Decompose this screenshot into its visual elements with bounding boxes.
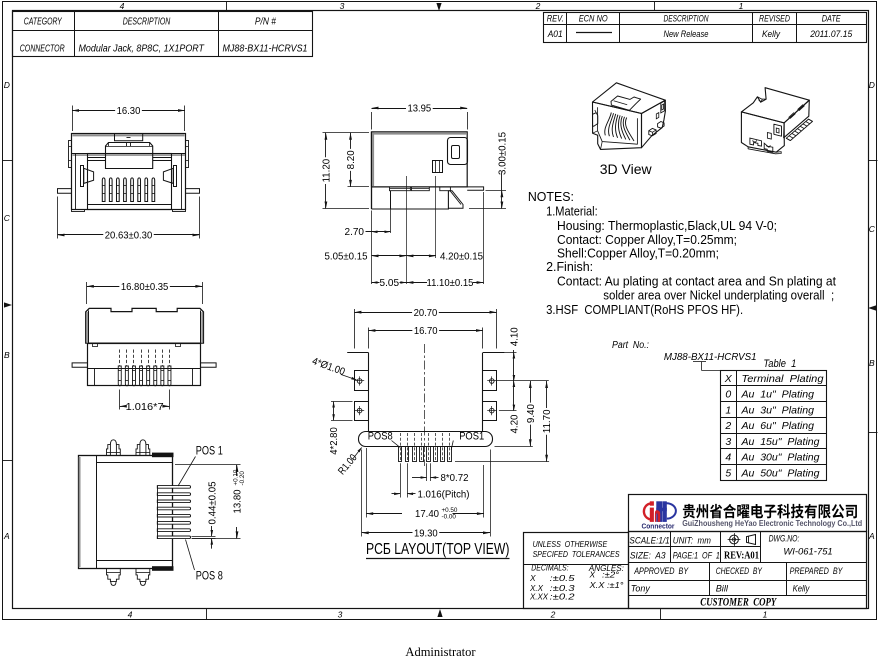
svg-text:13.95: 13.95 — [407, 104, 431, 115]
svg-text:SCALE:1/1: SCALE:1/1 — [629, 535, 669, 546]
svg-text:solder area over Nickel underp: solder area over Nickel underplating ove… — [603, 289, 834, 303]
svg-text:2: 2 — [550, 610, 556, 620]
svg-text:5.05±0.15: 5.05±0.15 — [325, 251, 368, 262]
svg-text::±0.2: :±0.2 — [550, 591, 575, 601]
svg-text:20.63±0.30: 20.63±0.30 — [105, 231, 153, 242]
svg-text:1.016(Pitch): 1.016(Pitch) — [418, 489, 470, 500]
svg-text:4: 4 — [128, 610, 133, 620]
svg-text:16.30: 16.30 — [117, 106, 141, 117]
svg-text:-0.00: -0.00 — [442, 514, 457, 521]
svg-text:3.00±0.15: 3.00±0.15 — [497, 132, 508, 175]
svg-text:-0.20: -0.20 — [239, 471, 246, 486]
svg-text:Tony: Tony — [631, 583, 651, 594]
svg-text:2: 2 — [535, 1, 541, 11]
svg-text:2.Finish:: 2.Finish: — [546, 260, 593, 274]
svg-text:3: 3 — [338, 610, 343, 620]
svg-text:C: C — [4, 213, 11, 223]
svg-text:Bill: Bill — [716, 583, 729, 594]
svg-text:20.70: 20.70 — [414, 308, 438, 319]
svg-text:REVISED: REVISED — [759, 13, 790, 24]
svg-text:POS1: POS1 — [459, 430, 484, 442]
svg-text:Kelly: Kelly — [762, 29, 781, 40]
svg-text:REV:A01: REV:A01 — [724, 551, 759, 562]
svg-text:POS8: POS8 — [368, 430, 393, 442]
svg-text:1: 1 — [763, 610, 768, 620]
svg-text:8.20: 8.20 — [346, 150, 357, 169]
svg-text:PREPARED BY: PREPARED BY — [790, 566, 843, 577]
svg-text:APPROVED BY: APPROVED BY — [633, 566, 688, 577]
svg-text:Au 15u" Plating: Au 15u" Plating — [740, 436, 819, 448]
svg-text:0: 0 — [725, 389, 731, 401]
svg-text:2: 2 — [724, 420, 731, 432]
svg-text:B: B — [4, 350, 10, 360]
svg-text:X: X — [589, 570, 596, 580]
svg-text:5: 5 — [725, 467, 731, 479]
svg-text:SPECIFED TOLERANCES: SPECIFED TOLERANCES — [533, 549, 620, 559]
svg-text:16.80±0.35: 16.80±0.35 — [121, 282, 169, 293]
svg-text:UNIT: mm: UNIT: mm — [673, 535, 711, 546]
svg-text:Administrator: Administrator — [405, 645, 476, 659]
svg-text:2011.07.15: 2011.07.15 — [809, 29, 853, 40]
svg-text:4.20: 4.20 — [509, 414, 520, 433]
svg-text:4.20±0.15: 4.20±0.15 — [440, 251, 483, 262]
svg-text:X.XX: X.XX — [529, 591, 548, 601]
svg-text:Contact: Copper Alloy,T=0.25mm: Contact: Copper Alloy,T=0.25mm; — [557, 233, 737, 247]
svg-text:11.10±0.15: 11.10±0.15 — [427, 278, 474, 289]
svg-text:17.40: 17.40 — [415, 509, 439, 520]
svg-text:3: 3 — [725, 436, 731, 448]
svg-text:Part No.:: Part No.: — [612, 340, 649, 351]
svg-text:Housing: Thermoplastic,Бlack,U: Housing: Thermoplastic,Бlack,UL 94 V-0; — [557, 219, 777, 233]
svg-text:Connector: Connector — [642, 522, 675, 531]
svg-text:B: B — [869, 358, 875, 368]
svg-text:CATEGORY: CATEGORY — [24, 16, 63, 27]
svg-text:C: C — [869, 224, 876, 234]
svg-text:D: D — [4, 80, 10, 90]
svg-text:D: D — [869, 80, 875, 90]
svg-text::±0.5: :±0.5 — [550, 573, 575, 583]
svg-text:9.40: 9.40 — [526, 404, 537, 423]
svg-text::±2°: :±2° — [602, 570, 620, 580]
svg-text:CUSTOMER COPY: CUSTOMER COPY — [700, 597, 777, 609]
svg-text:8*0.72: 8*0.72 — [441, 473, 469, 484]
svg-text:4: 4 — [120, 1, 125, 11]
svg-text:4*2.80: 4*2.80 — [329, 427, 340, 455]
svg-text:Au 30u" Plating: Au 30u" Plating — [740, 452, 819, 464]
svg-text:1.016*7: 1.016*7 — [126, 402, 164, 413]
svg-text:Au 6u" Plating: Au 6u" Plating — [740, 420, 814, 432]
svg-text:1: 1 — [725, 404, 731, 416]
svg-text:11.70: 11.70 — [542, 409, 553, 433]
svg-text:4.10: 4.10 — [509, 327, 520, 346]
svg-text:A: A — [3, 531, 10, 541]
svg-text:Contact: Au plating at contact: Contact: Au plating at contact area and … — [557, 275, 836, 289]
svg-text:X: X — [724, 373, 733, 385]
svg-text:Au 50u" Plating: Au 50u" Plating — [740, 467, 819, 479]
svg-text:Kelly: Kelly — [793, 583, 811, 594]
svg-text:DESCRIPTION: DESCRIPTION — [123, 16, 171, 27]
svg-text:16.70: 16.70 — [414, 326, 438, 337]
svg-text:CHECKED BY: CHECKED BY — [716, 566, 763, 577]
svg-text:UNLESS OTHERWISE: UNLESS OTHERWISE — [533, 539, 608, 549]
svg-text:Modular Jack, 8P8C, 1X1PORT: Modular Jack, 8P8C, 1X1PORT — [79, 43, 205, 54]
svg-text:DESCRIPTION: DESCRIPTION — [664, 13, 709, 24]
svg-text:4: 4 — [725, 452, 731, 464]
svg-text:0.44±0.05: 0.44±0.05 — [207, 481, 218, 524]
svg-text:ECN NO: ECN NO — [579, 13, 608, 24]
svg-text:NOTES:: NOTES: — [528, 190, 574, 204]
svg-text:Au 3u" Plating: Au 3u" Plating — [740, 404, 814, 416]
svg-text:Au 1u" Plating: Au 1u" Plating — [740, 389, 814, 401]
svg-text:CONNECTOR: CONNECTOR — [20, 43, 65, 54]
svg-text:3: 3 — [340, 1, 345, 11]
svg-text:DWG.NO:: DWG.NO: — [769, 534, 800, 544]
svg-text:DECIMALS:: DECIMALS: — [531, 563, 568, 573]
svg-text:Terminal Plating: Terminal Plating — [742, 373, 824, 385]
svg-text:X: X — [529, 573, 536, 583]
svg-text:X.X :±1°: X.X :±1° — [588, 580, 624, 590]
svg-text:1: 1 — [739, 1, 744, 11]
svg-text:SIZE: A3: SIZE: A3 — [630, 550, 666, 561]
svg-text:GuiZhousheng HeYao Electronic: GuiZhousheng HeYao Electronic Technology… — [682, 519, 862, 528]
svg-text:Shell:Copper Alloy,T=0.20mm;: Shell:Copper Alloy,T=0.20mm; — [557, 247, 719, 261]
svg-text:New Release: New Release — [664, 29, 709, 40]
svg-text:5.05: 5.05 — [380, 278, 400, 289]
svg-text:1.Material:: 1.Material: — [546, 205, 598, 219]
svg-text:19.30: 19.30 — [414, 528, 438, 539]
svg-text:Table 1: Table 1 — [763, 358, 796, 370]
svg-text:A01: A01 — [547, 29, 563, 40]
svg-text:A: A — [868, 531, 875, 541]
svg-text:11.20: 11.20 — [322, 159, 333, 183]
svg-text:MJ88-BX11-HCRVS1: MJ88-BX11-HCRVS1 — [664, 351, 757, 363]
svg-text:P/N #: P/N # — [255, 16, 276, 27]
svg-text:PCБ LAYOUT(TOP VIEW): PCБ LAYOUT(TOP VIEW) — [366, 541, 510, 558]
svg-text:POS 8: POS 8 — [196, 569, 223, 583]
svg-text:DATE: DATE — [822, 13, 842, 24]
svg-text:3D View: 3D View — [600, 161, 653, 177]
svg-text:3.HSF COMPLIANT(RoHS PFOS HF): 3.HSF COMPLIANT(RoHS PFOS HF). — [546, 303, 743, 317]
svg-text:13.80: 13.80 — [233, 489, 244, 513]
svg-text:REV.: REV. — [547, 13, 564, 24]
svg-text:POS 1: POS 1 — [196, 444, 223, 458]
svg-text:WI-061-751: WI-061-751 — [783, 547, 832, 558]
svg-text:2.70: 2.70 — [345, 227, 365, 238]
svg-text:PAGE:1 OF 1: PAGE:1 OF 1 — [673, 550, 720, 561]
svg-text:MJ88-BX11-HCRVS1: MJ88-BX11-HCRVS1 — [223, 43, 308, 54]
